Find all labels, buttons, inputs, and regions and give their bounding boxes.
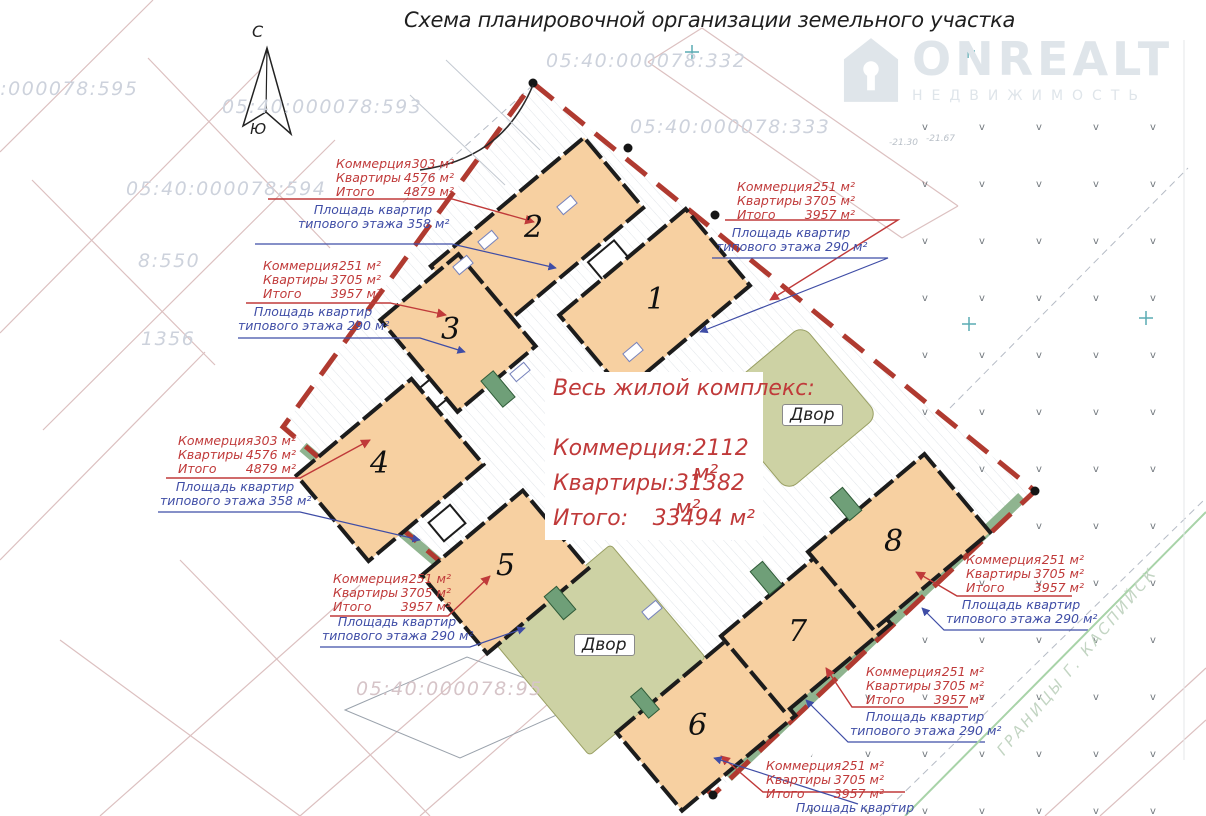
apartments-label: Квартиры (263, 273, 328, 287)
floor-area-value: 290 м² (959, 723, 1001, 738)
apartments-label: Квартиры (966, 567, 1031, 581)
total-value: 4879 м² (246, 462, 296, 476)
floor-note-line2: типового этажа 358 м² (160, 494, 310, 508)
building-3-floor-annotation: Площадь квартир типового этажа 290 м² (238, 305, 388, 334)
cadastral-number: 05:40:000078:95 (356, 678, 543, 700)
building-number-2: 2 (524, 210, 543, 245)
total-label: Итого (866, 693, 905, 707)
summary-total-label: Итого: (553, 506, 628, 531)
annotation-row: Квартиры3705 м² (766, 773, 884, 787)
total-value: 3957 м² (805, 208, 855, 222)
building-2-area-annotation: Коммерция303 м² Квартиры4576 м² Итого487… (336, 157, 454, 199)
annotation-row: Итого3957 м² (737, 208, 855, 222)
annotation-row: Коммерция251 м² (263, 259, 381, 273)
building-number-7: 7 (788, 614, 807, 649)
cadastral-number: 05:40:000078:332 (546, 50, 746, 72)
watermark-brand: ONREALT (912, 36, 1173, 82)
apartments-value: 4576 м² (246, 448, 296, 462)
summary-total-value: 33494 м² (653, 506, 755, 531)
total-value: 3957 м² (834, 787, 884, 801)
floor-note-line2: типового этажа 290 м² (850, 724, 1000, 738)
annotation-row: Итого4879 м² (178, 462, 296, 476)
floor-note-line1: Площадь квартир (716, 226, 866, 240)
commerce-label: Коммерция (737, 180, 812, 194)
floor-note-line1: Площадь квартир (298, 203, 448, 217)
floor-note-text: типового этажа (946, 611, 1051, 626)
watermark-text: ONREALT НЕДВИЖИМОСТЬ (912, 36, 1173, 104)
floor-note-line2: типового этажа 290 м² (716, 240, 866, 254)
annotation-row: Итого3957 м² (263, 287, 381, 301)
floor-note-line1: Площадь квартир (946, 598, 1096, 612)
annotation-row: Коммерция251 м² (966, 553, 1084, 567)
courtyard-label: Двор (574, 634, 635, 656)
annotation-row: Итого3957 м² (966, 581, 1084, 595)
floor-area-value: 358 м² (269, 493, 311, 508)
commerce-label: Коммерция (866, 665, 941, 679)
compass-south-label: Ю (250, 120, 266, 138)
apartments-value: 3705 м² (1034, 567, 1084, 581)
annotation-row: Квартиры3705 м² (866, 679, 984, 693)
floor-note-text: типового этажа (850, 723, 955, 738)
floor-area-value: 290 м² (825, 239, 867, 254)
apartments-label: Квартиры (766, 773, 831, 787)
annotation-row: Квартиры4576 м² (178, 448, 296, 462)
apartments-value: 3705 м² (934, 679, 984, 693)
floor-note-text: типового этажа (238, 318, 343, 333)
total-label: Итого (178, 462, 217, 476)
commerce-value: 251 м² (409, 572, 451, 586)
site-plan: v (0, 0, 1206, 816)
commerce-value: 303 м² (254, 434, 296, 448)
elevation-mark: -21.67 (926, 134, 955, 144)
floor-note-line1: Площадь квартир (780, 801, 930, 815)
building-4-area-annotation: Коммерция303 м² Квартиры4576 м² Итого487… (178, 434, 296, 476)
building-6-area-annotation: Коммерция251 м² Квартиры3705 м² Итого395… (766, 759, 884, 801)
annotation-row: Квартиры3705 м² (333, 586, 451, 600)
annotation-row: Итого3957 м² (866, 693, 984, 707)
commerce-label: Коммерция (333, 572, 408, 586)
building-2-floor-annotation: Площадь квартир типового этажа 358 м² (298, 203, 448, 232)
courtyard-label: Двор (782, 404, 843, 426)
total-value: 4879 м² (404, 185, 454, 199)
cadastral-number: 05:40:000078:595 (0, 78, 138, 100)
floor-note-line1: Площадь квартир (238, 305, 388, 319)
cadastral-number: 1356 (141, 328, 195, 350)
annotation-row: Квартиры4576 м² (336, 171, 454, 185)
building-3-area-annotation: Коммерция251 м² Квартиры3705 м² Итого395… (263, 259, 381, 301)
annotation-row: Коммерция251 м² (737, 180, 855, 194)
floor-note-line2: типового этажа 290 м² (322, 629, 472, 643)
cadastral-number: 05:40:000078:333 (630, 116, 830, 138)
apartments-value: 3705 м² (401, 586, 451, 600)
summary-total-row: Итого: 33494 м² (553, 506, 755, 531)
total-label: Итого (737, 208, 776, 222)
floor-area-value: 290 м² (431, 628, 473, 643)
commerce-label: Коммерция (336, 157, 411, 171)
floor-note-text: типового этажа (298, 216, 403, 231)
commerce-value: 251 м² (842, 759, 884, 773)
cadastral-number: 8:550 (138, 250, 200, 272)
floor-note-line2: типового этажа 290 м² (946, 612, 1096, 626)
floor-area-value: 290 м² (1055, 611, 1097, 626)
building-7-floor-annotation: Площадь квартир типового этажа 290 м² (850, 710, 1000, 739)
annotation-row: Итого4879 м² (336, 185, 454, 199)
annotation-row: Квартиры3705 м² (263, 273, 381, 287)
building-number-1: 1 (646, 282, 665, 317)
floor-area-value: 358 м² (407, 216, 449, 231)
apartments-value: 3705 м² (834, 773, 884, 787)
building-8-floor-annotation: Площадь квартир типового этажа 290 м² (946, 598, 1096, 627)
total-value: 3957 м² (1034, 581, 1084, 595)
commerce-label: Коммерция (263, 259, 338, 273)
annotation-row: Коммерция251 м² (333, 572, 451, 586)
apartments-value: 4576 м² (404, 171, 454, 185)
total-label: Итого (766, 787, 805, 801)
commerce-value: 251 м² (813, 180, 855, 194)
building-1-floor-annotation: Площадь квартир типового этажа 290 м² (716, 226, 866, 255)
commerce-label: Коммерция (966, 553, 1041, 567)
commerce-value: 251 м² (1042, 553, 1084, 567)
commerce-label: Коммерция (178, 434, 253, 448)
floor-note-text: типового этажа (716, 239, 821, 254)
commerce-value: 303 м² (412, 157, 454, 171)
cadastral-number: 05:40:000078:593 (222, 96, 422, 118)
total-label: Итого (336, 185, 375, 199)
annotation-row: Коммерция303 м² (178, 434, 296, 448)
elevation-mark: -21.30 (889, 138, 918, 148)
building-5-floor-annotation: Площадь квартир типового этажа 290 м² (322, 615, 472, 644)
building-6-floor-annotation: Площадь квартир типового этажа 290 м² (780, 801, 930, 816)
watermark: ONREALT НЕДВИЖИМОСТЬ (842, 36, 1173, 104)
apartments-label: Квартиры (178, 448, 243, 462)
building-7-area-annotation: Коммерция251 м² Квартиры3705 м² Итого395… (866, 665, 984, 707)
annotation-row: Коммерция303 м² (336, 157, 454, 171)
total-value: 3957 м² (934, 693, 984, 707)
floor-note-line1: Площадь квартир (850, 710, 1000, 724)
apartments-value: 3705 м² (805, 194, 855, 208)
apartments-label: Квартиры (737, 194, 802, 208)
page-title: Схема планировочной организации земельно… (404, 8, 1015, 32)
floor-note-line1: Площадь квартир (160, 480, 310, 494)
total-label: Итого (966, 581, 1005, 595)
building-8-area-annotation: Коммерция251 м² Квартиры3705 м² Итого395… (966, 553, 1084, 595)
floor-note-line2: типового этажа 358 м² (298, 217, 448, 231)
total-label: Итого (333, 600, 372, 614)
apartments-label: Квартиры (336, 171, 401, 185)
complex-summary-box: Весь жилой комплекс: Коммерция: 2112 м² … (545, 372, 763, 540)
floor-note-line2: типового этажа 290 м² (238, 319, 388, 333)
total-label: Итого (263, 287, 302, 301)
commerce-value: 251 м² (942, 665, 984, 679)
floor-area-value: 290 м² (347, 318, 389, 333)
total-value: 3957 м² (401, 600, 451, 614)
commerce-value: 251 м² (339, 259, 381, 273)
cadastral-number: 05:40:000078:594 (126, 178, 326, 200)
watermark-tagline: НЕДВИЖИМОСТЬ (912, 88, 1173, 104)
building-number-4: 4 (370, 446, 389, 481)
building-1-area-annotation: Коммерция251 м² Квартиры3705 м² Итого395… (737, 180, 855, 222)
commerce-label: Коммерция (766, 759, 841, 773)
building-4-floor-annotation: Площадь квартир типового этажа 358 м² (160, 480, 310, 509)
annotation-row: Квартиры3705 м² (737, 194, 855, 208)
apartments-value: 3705 м² (331, 273, 381, 287)
annotation-row: Итого3957 м² (766, 787, 884, 801)
floor-note-text: типового этажа (322, 628, 427, 643)
house-icon (842, 36, 900, 104)
apartments-label: Квартиры (866, 679, 931, 693)
compass-north-label: С (252, 22, 263, 41)
annotation-row: Итого3957 м² (333, 600, 451, 614)
apartments-label: Квартиры (333, 586, 398, 600)
total-value: 3957 м² (331, 287, 381, 301)
annotation-row: Квартиры3705 м² (966, 567, 1084, 581)
floor-note-text: типового этажа (160, 493, 265, 508)
building-number-3: 3 (441, 312, 460, 347)
summary-heading: Весь жилой комплекс: (553, 376, 815, 401)
annotation-row: Коммерция251 м² (766, 759, 884, 773)
floor-note-line1: Площадь квартир (322, 615, 472, 629)
building-number-5: 5 (496, 548, 515, 583)
building-5-area-annotation: Коммерция251 м² Квартиры3705 м² Итого395… (333, 572, 451, 614)
annotation-row: Коммерция251 м² (866, 665, 984, 679)
building-number-8: 8 (884, 524, 903, 559)
building-number-6: 6 (688, 708, 707, 743)
